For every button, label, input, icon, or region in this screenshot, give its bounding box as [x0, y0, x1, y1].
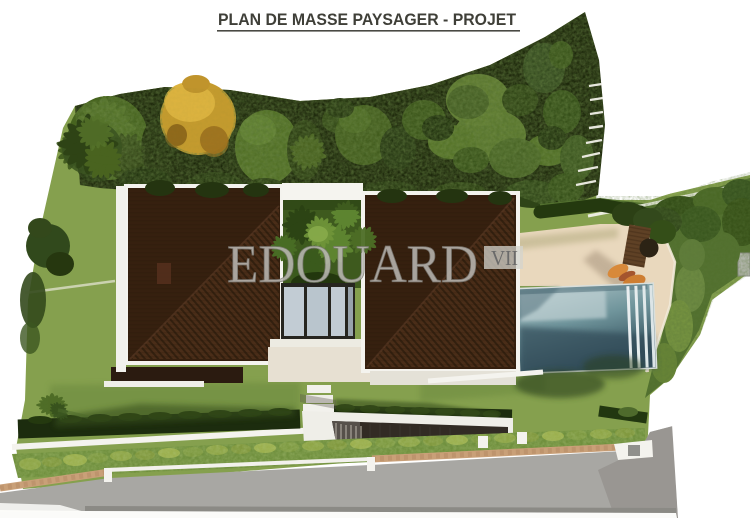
svg-text:PLAN DE MASSE PAYSAGER - PROJE: PLAN DE MASSE PAYSAGER - PROJET: [218, 10, 517, 29]
svg-text:VII: VII: [491, 246, 518, 270]
svg-text:EDOUARD: EDOUARD: [227, 234, 478, 294]
